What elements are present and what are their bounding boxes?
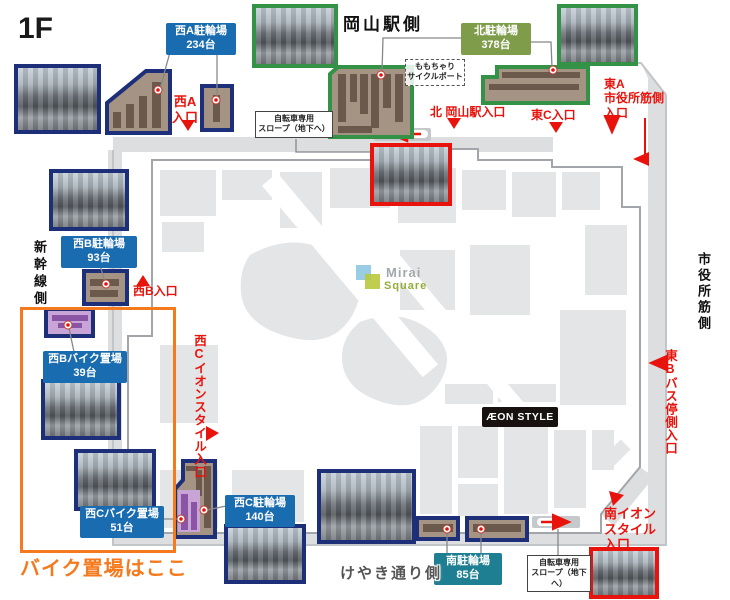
parking-count: 85台 (437, 569, 499, 583)
entrance-west-a: 西A 入口 (172, 94, 198, 125)
parking-name: 西A駐輪場 (169, 25, 233, 39)
north-entrance-triangle (447, 118, 461, 129)
label-south-parking: 南駐輪場 85台 (434, 553, 502, 585)
note-text: スロープ（地下へ） (257, 124, 331, 134)
west-a-parking-shape (107, 71, 170, 133)
label-north-parking: 北駐輪場 378台 (461, 23, 531, 55)
parking-count: 378台 (464, 39, 528, 53)
bike-area-here-text: バイク置場はここ (20, 552, 188, 581)
south-parking-shape-east (467, 518, 527, 540)
note-slope-north: 自転車専用 スロープ（地下へ） (255, 111, 333, 138)
north-parking-shape-east (483, 67, 588, 103)
photo-west-c-bike-area (74, 449, 156, 511)
label-west-b-parking: 西B駐輪場 93台 (61, 236, 137, 268)
entrance-east-a: 東A 市役所筋側 入口 (604, 77, 664, 120)
parking-name: 西Bバイク置場 (46, 353, 124, 367)
parking-count: 140台 (228, 511, 292, 525)
photo-north-east-parking (557, 4, 638, 66)
photo-west-c-parking (224, 524, 306, 584)
floor-label: 1F (18, 12, 53, 46)
photo-north-entrance (370, 143, 452, 206)
note-text: ももちゃり (407, 62, 463, 72)
photo-south-entrance (589, 547, 659, 599)
parking-count: 39台 (46, 367, 124, 381)
entrance-west-c-aeon: 西Cイオンスタイル入口 (191, 334, 206, 479)
mirai-logo-text2: Square (384, 281, 427, 292)
label-west-c-bike: 西Cバイク置場 51台 (80, 506, 164, 538)
photo-west-b-bike-area (41, 379, 121, 440)
parking-name: 西C駐輪場 (228, 497, 292, 511)
entrance-north: 北 岡山駅入口 (430, 105, 505, 119)
entrance-text: 西A (172, 94, 198, 110)
entrance-text: 南イオン (604, 506, 656, 522)
side-label-cityhall: 市役所筋側 (694, 252, 713, 332)
mirai-square-logo: Mirai Square (356, 263, 446, 299)
entrance-text: 入口 (604, 537, 656, 553)
parking-count: 234台 (169, 39, 233, 53)
label-west-b-bike: 西Bバイク置場 39台 (43, 351, 127, 383)
entrance-text: スタイル (604, 522, 656, 538)
entrance-east-b: 東Bバス停側入口 (662, 349, 677, 455)
label-west-c-parking: 西C駐輪場 140台 (225, 495, 295, 527)
photo-west-b-parking (49, 169, 129, 231)
entrance-text: 入口 (604, 106, 664, 120)
note-text: 自転車専用 (529, 558, 589, 568)
entrance-text: 入口 (172, 110, 198, 126)
note-momochari-cycleport: ももちゃり サイクルポート (405, 59, 465, 86)
aeon-style-logo: ÆON STYLE (482, 407, 558, 427)
note-text: 自転車専用 (257, 114, 331, 124)
side-label-station: 岡山駅側 (343, 10, 423, 35)
photo-north-cycle-port (252, 4, 338, 68)
side-label-keyaki: けやき通り側 (340, 562, 442, 583)
note-text: スロープ（地下へ） (529, 568, 589, 589)
parking-name: 南駐輪場 (437, 555, 499, 569)
entrance-text: 東A (604, 77, 664, 91)
label-west-a-parking: 西A駐輪場 234台 (166, 23, 236, 55)
photo-west-a-parking (14, 64, 101, 134)
east-c-entrance-triangle (549, 122, 563, 133)
floor-map-1f: 西A駐輪場 234台 北駐輪場 378台 西B駐輪場 93台 西Bバイク置場 3… (0, 0, 730, 600)
parking-name: 北駐輪場 (464, 25, 528, 39)
parking-name: 西Cバイク置場 (83, 508, 161, 522)
parking-count: 93台 (64, 252, 134, 266)
entrance-south-aeon: 南イオン スタイル 入口 (604, 506, 656, 553)
entrance-west-b: 西B入口 (133, 284, 178, 298)
entrance-east-c: 東C入口 (531, 108, 576, 122)
parking-name: 西B駐輪場 (64, 238, 134, 252)
photo-keyaki-street (317, 469, 416, 544)
bicycle-ramp-south (532, 516, 580, 528)
entrance-text: 市役所筋側 (604, 91, 664, 105)
parking-count: 51台 (83, 522, 161, 536)
note-slope-south: 自転車専用 スロープ（地下へ） (527, 555, 591, 592)
mirai-logo-text1: Mirai (386, 266, 421, 279)
south-parking-shape-west (417, 518, 458, 539)
north-parking-shape (330, 67, 412, 137)
mirai-logo-square-green (365, 274, 380, 289)
side-label-shinkansen: 新幹線側 (30, 240, 49, 308)
note-text: サイクルポート (407, 72, 463, 82)
